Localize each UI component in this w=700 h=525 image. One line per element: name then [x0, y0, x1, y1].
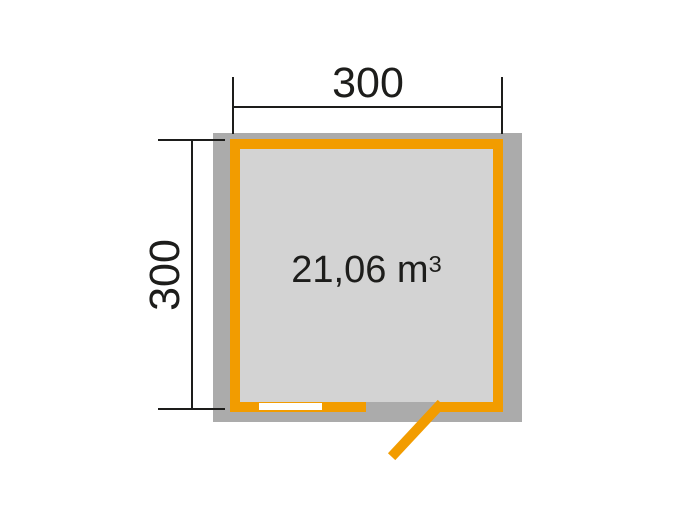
door-opening [366, 402, 436, 412]
interior-volume-superscript: 3 [429, 251, 442, 277]
floorplan-canvas: 300 300 21,06 m3 [0, 0, 700, 525]
dimension-height-label: 300 [143, 214, 187, 336]
dimension-height-tick-bottom [158, 408, 225, 410]
dimension-width-label: 300 [233, 62, 503, 105]
dimension-height-tick-top [158, 139, 225, 141]
window [259, 403, 322, 410]
interior-volume-label: 21,06 m3 [230, 251, 503, 289]
dimension-height-line [191, 139, 193, 410]
interior-volume-value: 21,06 m [291, 249, 428, 291]
